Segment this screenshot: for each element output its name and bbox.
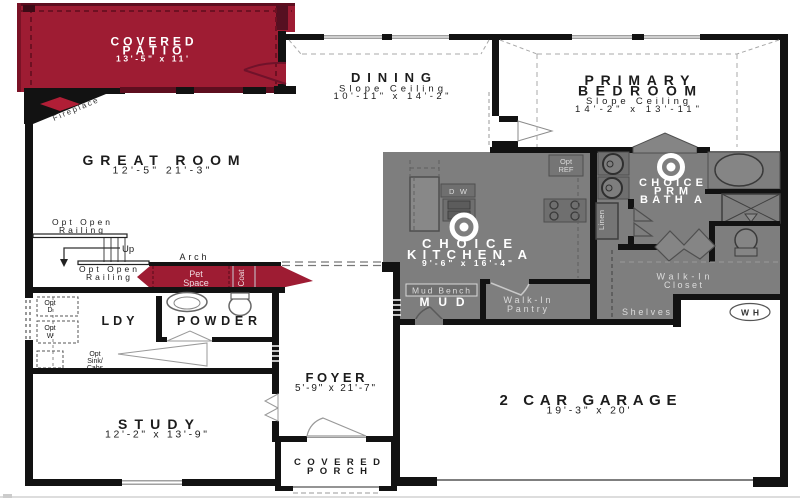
svg-text:Sink/: Sink/ <box>87 358 103 365</box>
svg-text:Mud Bench: Mud Bench <box>412 286 470 296</box>
svg-text:Opt: Opt <box>44 300 55 307</box>
svg-text:Opt: Opt <box>44 325 55 332</box>
svg-text:Up: Up <box>122 244 134 255</box>
svg-text:LDY: LDY <box>102 314 136 328</box>
svg-text:Coat: Coat <box>237 269 246 287</box>
svg-text:Space: Space <box>183 278 209 288</box>
svg-text:W: W <box>47 333 54 340</box>
svg-text:2 CAR GARAGE: 2 CAR GARAGE <box>500 392 677 409</box>
svg-text:Opt: Opt <box>89 351 100 358</box>
svg-text:REF: REF <box>559 165 574 174</box>
svg-text:MUD: MUD <box>420 295 465 309</box>
svg-text:Linen: Linen <box>597 210 606 230</box>
svg-text:5'-9" x 21'-7": 5'-9" x 21'-7" <box>295 383 375 394</box>
svg-text:D: D <box>47 307 52 314</box>
